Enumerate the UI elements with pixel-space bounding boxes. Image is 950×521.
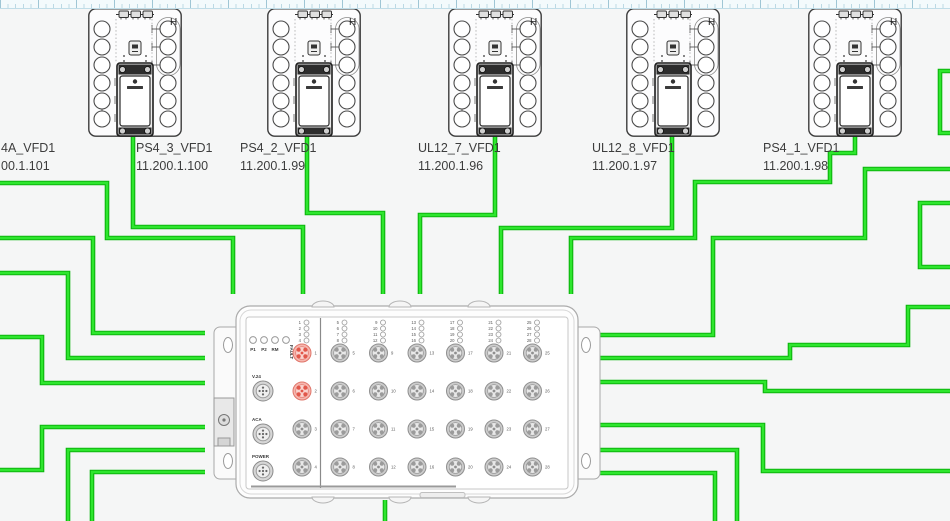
- port-led: [381, 332, 386, 337]
- device-name-label: 4A_VFD1: [1, 141, 55, 155]
- network-wire-bottom-right-2[interactable]: [598, 473, 715, 521]
- port-led: [535, 326, 540, 331]
- port-number-label: 20: [468, 465, 473, 470]
- switch-port-24: [485, 458, 503, 476]
- port-led-number: 17: [450, 320, 455, 325]
- port-led: [458, 338, 463, 343]
- switch-port-26: [524, 382, 542, 400]
- switch-port-2: [293, 382, 311, 400]
- device-labels: 4A_VFD100.1.101PS4_3_VFD111.200.1.100PS4…: [1, 141, 839, 173]
- network-diagram: H: [0, 0, 950, 521]
- device-ip-label: 11.200.1.100: [136, 159, 208, 173]
- switch-port-25: [524, 344, 542, 362]
- switch-port-7: [331, 420, 349, 438]
- switch-port-14: [408, 382, 426, 400]
- port-led: [304, 338, 309, 343]
- port-led: [304, 326, 309, 331]
- port-number-label: 13: [430, 351, 435, 356]
- switch-port-28: [524, 458, 542, 476]
- port-number-label: 14: [430, 389, 435, 394]
- network-wire-right-jog-2[interactable]: [920, 203, 950, 267]
- connector-ACA: [253, 424, 273, 444]
- network-wire-left-edge-2[interactable]: [0, 238, 205, 333]
- switch-port-11: [370, 420, 388, 438]
- switch-port-27: [524, 420, 542, 438]
- port-number-label: 10: [391, 389, 396, 394]
- port-led: [458, 332, 463, 337]
- port-led: [458, 326, 463, 331]
- port-led: [535, 338, 540, 343]
- network-wire-left-edge-3[interactable]: [0, 273, 205, 358]
- port-number-label: 12: [391, 465, 396, 470]
- port-led: [342, 332, 347, 337]
- port-led-number: 22: [488, 326, 493, 331]
- horizontal-ruler: [0, 0, 950, 9]
- device-ip-label: 11.200.1.99: [240, 159, 305, 173]
- port-number-label: 24: [507, 465, 512, 470]
- port-led: [419, 338, 424, 343]
- switch-port-19: [447, 420, 465, 438]
- switch-port-23: [485, 420, 503, 438]
- port-led: [342, 326, 347, 331]
- port-led-number: 28: [527, 338, 532, 343]
- port-led-number: 27: [527, 332, 532, 337]
- port-led-number: 10: [373, 326, 378, 331]
- port-number-label: 18: [468, 389, 473, 394]
- device-ip-label: 11.200.1.98: [763, 159, 828, 173]
- vfd-device-UL12_8[interactable]: [627, 9, 719, 136]
- port-led-number: 18: [450, 326, 455, 331]
- port-led: [496, 332, 501, 337]
- switch-port-12: [370, 458, 388, 476]
- port-led: [496, 338, 501, 343]
- port-led-number: 12: [373, 338, 378, 343]
- port-led-number: 25: [527, 320, 532, 325]
- port-led-number: 20: [450, 338, 455, 343]
- switch-port-13: [408, 344, 426, 362]
- network-wire-bottom-left-2[interactable]: [92, 472, 205, 521]
- vfd-device-PS4_1[interactable]: [809, 9, 901, 136]
- port-led-number: 14: [411, 326, 416, 331]
- port-led: [458, 320, 463, 325]
- port-led: [381, 338, 386, 343]
- device-name-label: PS4_3_VFD1: [136, 141, 212, 155]
- connector-POWER: [253, 461, 273, 481]
- port-number-label: 22: [507, 389, 512, 394]
- switch-port-16: [408, 458, 426, 476]
- switch-port-5: [331, 344, 349, 362]
- port-number-label: 25: [545, 351, 550, 356]
- diagram-canvas: H: [0, 0, 950, 521]
- connector-label-POWER: POWER: [252, 454, 270, 459]
- port-led: [381, 320, 386, 325]
- din-clamp: [214, 398, 234, 446]
- port-number-label: 21: [507, 351, 512, 356]
- port-led-number: 15: [411, 332, 416, 337]
- switch-port-10: [370, 382, 388, 400]
- port-number-label: 23: [507, 427, 512, 432]
- port-led: [342, 338, 347, 343]
- vfd-devices: [89, 9, 901, 136]
- switch-port-4: [293, 458, 311, 476]
- connector-V.24: [253, 381, 273, 401]
- vfd-device-PS4_2[interactable]: [268, 9, 360, 136]
- port-led: [419, 332, 424, 337]
- port-number-label: 26: [545, 389, 550, 394]
- switch-port-21: [485, 344, 503, 362]
- vfd-device-PS4_3[interactable]: [89, 9, 181, 136]
- port-led-number: 23: [488, 332, 493, 337]
- device-name-label: PS4_1_VFD1: [763, 141, 839, 155]
- switch-port-1: [293, 344, 311, 362]
- status-led-P2: [261, 337, 268, 344]
- network-wire-right-edge-2[interactable]: [598, 307, 950, 358]
- network-wire-vfd-ps4-2[interactable]: [307, 136, 383, 294]
- status-led-label-P2: P2: [261, 347, 267, 352]
- status-led-FAULT: [283, 337, 290, 344]
- device-ip-label: 11.200.1.96: [418, 159, 483, 173]
- port-led-number: 13: [411, 320, 416, 325]
- switch-port-15: [408, 420, 426, 438]
- port-number-label: 17: [468, 351, 473, 356]
- status-led-label-RM: RM: [272, 347, 279, 352]
- status-led-P1: [250, 337, 257, 344]
- switch-port-9: [370, 344, 388, 362]
- network-wire-bottom-left-1[interactable]: [68, 450, 205, 521]
- port-led: [304, 320, 309, 325]
- port-led-number: 16: [411, 338, 416, 343]
- device-ip-label: 00.1.101: [1, 159, 50, 173]
- network-wire-right-jog-1[interactable]: [940, 71, 950, 133]
- port-led-number: 21: [488, 320, 493, 325]
- port-led: [419, 326, 424, 331]
- port-number-label: 15: [430, 427, 435, 432]
- device-name-label: UL12_8_VFD1: [592, 141, 675, 155]
- status-led-label-P1: P1: [250, 347, 256, 352]
- ethernet-switch[interactable]: P1P2RMFAULTV.24ACAPOWER12341234567856789…: [214, 301, 600, 503]
- switch-port-20: [447, 458, 465, 476]
- switch-port-22: [485, 382, 503, 400]
- status-led-RM: [272, 337, 279, 344]
- switch-port-17: [447, 344, 465, 362]
- port-led: [381, 326, 386, 331]
- switch-port-18: [447, 382, 465, 400]
- device-name-label: UL12_7_VFD1: [418, 141, 501, 155]
- port-number-label: 28: [545, 465, 550, 470]
- network-wire-right-edge-3[interactable]: [598, 382, 950, 391]
- port-led: [419, 320, 424, 325]
- switch-bottom-vent: [420, 493, 465, 498]
- port-led: [535, 332, 540, 337]
- port-led: [496, 320, 501, 325]
- switch-port-3: [293, 420, 311, 438]
- device-name-label: PS4_2_VFD1: [240, 141, 316, 155]
- connector-label-V.24: V.24: [252, 374, 261, 379]
- port-led-number: 24: [488, 338, 493, 343]
- switch-port-8: [331, 458, 349, 476]
- network-wire-right-edge-1[interactable]: [598, 169, 950, 335]
- port-led: [535, 320, 540, 325]
- port-number-label: 16: [430, 465, 435, 470]
- switch-port-6: [331, 382, 349, 400]
- port-number-label: 11: [391, 427, 396, 432]
- port-led: [496, 326, 501, 331]
- connector-label-ACA: ACA: [252, 417, 262, 422]
- device-ip-label: 11.200.1.97: [592, 159, 657, 173]
- vfd-device-UL12_7[interactable]: [449, 9, 541, 136]
- port-led: [304, 332, 309, 337]
- port-led-number: 19: [450, 332, 455, 337]
- port-led: [342, 320, 347, 325]
- port-led-number: 11: [373, 332, 378, 337]
- port-number-label: 27: [545, 427, 550, 432]
- port-number-label: 19: [468, 427, 473, 432]
- port-led-number: 26: [527, 326, 532, 331]
